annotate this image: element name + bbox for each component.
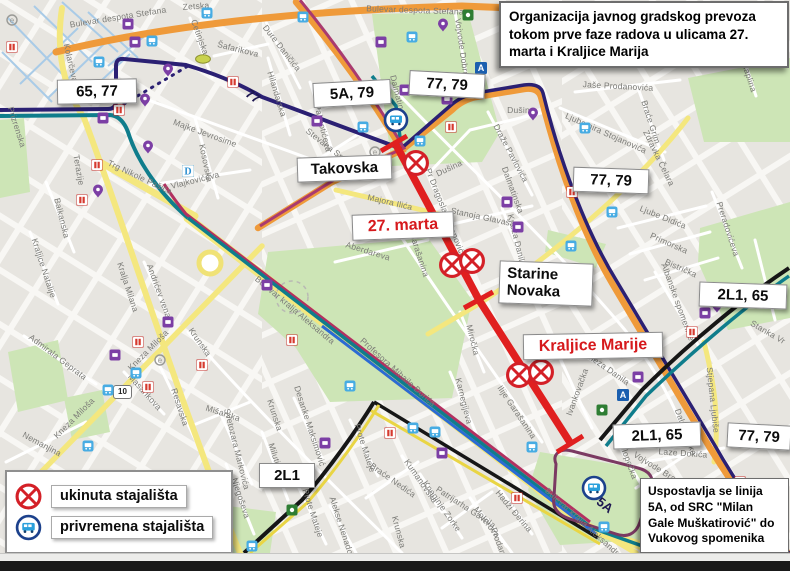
bus-stop-icon [358,122,369,133]
street-name-label: Karnegijeva [453,377,474,425]
street-name-label: Desanke Maksimović [292,385,327,468]
svg-text:A: A [478,63,485,73]
poi-hospital-icon [385,428,396,439]
street-name-label: Aberdareva [345,240,392,263]
street-name-label: Laze Dokića [658,446,708,459]
legend-row-temporary: privremena stajališta [15,514,223,541]
poi-letter-d-icon: D [182,165,194,177]
poi-hospital-icon [143,382,154,393]
svg-text:e: e [10,16,15,25]
cancelled-stop-icon [528,359,555,386]
poi-hospital-icon [512,493,523,504]
bus-stop-icon [94,57,105,68]
poi-pin-icon [163,64,173,77]
poi-green-icon [463,10,474,21]
poi-hospital-icon [114,105,125,116]
route-label-box: 5A, 79 [312,79,391,108]
bus-stop-icon [345,381,356,392]
cancelled-stop-icon [403,150,430,177]
street-name-label: Balkanska [52,197,72,239]
bus-stop-icon [131,368,142,379]
temporary-stop-icon [383,107,409,133]
bus-stop-icon [580,123,591,134]
poi-hospital-icon [687,327,698,338]
street-name-label: Bulevar despota Stefana [69,4,167,29]
poi-hospital-icon [92,160,103,171]
route-label-box: 77, 79 [726,422,790,451]
street-name-label: Hilandarska [265,70,288,118]
route-label-box: 2L1 [259,463,315,488]
street-name-label: Primorska [649,230,690,255]
poi-purple-icon [502,197,513,208]
poi-purple-icon [110,350,121,361]
bus-stop-icon [247,541,258,552]
street-name-label: Profesora Mihaila Đurića [358,336,437,409]
route-label-box: 2L1, 65 [699,281,788,309]
poi-purple-icon [98,113,109,124]
bus-stop-icon [527,442,538,453]
poi-pin-icon [528,108,538,121]
poi-purple-icon [312,116,323,127]
poi-purple-icon [262,280,273,291]
route-label-box: Takovska [297,154,393,183]
street-name-label: Preradovićeva [714,200,741,257]
street-name-label: Majora Ilića [367,192,414,212]
poi-pin-icon [143,141,153,154]
street-name-label: Terazije [71,154,86,186]
inline-route-number: 77 [243,86,264,107]
poi-hospital-icon [197,360,208,371]
bus-stop-icon [408,423,419,434]
poi-purple-icon [700,308,711,319]
legend-box: ukinuta stajališta privremena stajališta [5,470,233,554]
poi-purple-icon [123,19,134,30]
map-title: Organizacija javnog gradskog prevoza tok… [499,1,789,68]
street-name-label: Bulevar despota Stefana [366,3,464,16]
poi-purple-icon [163,317,174,328]
bus-stop-icon [202,8,213,19]
street-name-label: Krunska [187,326,214,358]
legend-row-cancelled: ukinuta stajališta [15,483,223,510]
legend-label-temporary: privremena stajališta [51,516,213,539]
bus-stop-icon [103,385,114,396]
poi-hospital-icon [7,42,18,53]
poi-purple-icon [513,222,524,233]
poi-hospital-icon [133,337,144,348]
street-name-label: Jaše Prodanovića [582,79,653,93]
note-5a-line: Uspostavlja se linija 5A, od SRC "Milan … [640,478,789,553]
bottom-bar [0,561,790,571]
poi-pin-icon [93,185,103,198]
poi-e-icon: e [6,14,18,26]
poi-purple-icon [437,448,448,459]
bottom-strip [0,553,790,561]
street-name-label: Admirala Geprata [27,332,89,382]
poi-hospital-icon [287,335,298,346]
street-name-label: Dure Daničića [261,23,303,73]
poi-pin-icon [140,94,150,107]
route-label-box: 65, 77 [57,78,137,105]
street-name-label: Krunska [390,515,408,549]
bus-stop-icon [566,241,577,252]
poi-green-icon [597,405,608,416]
bus-stop-icon [83,441,94,452]
street-name-label: Krunska [265,398,285,432]
transit-map-canvas: ZetskaBulevar despota StefanaBulevar des… [0,0,790,571]
poi-hospital-icon [228,77,239,88]
route-label-box: Starine Novaka [498,260,593,306]
bus-stop-icon [607,207,618,218]
street-name-label: Šafarikova [216,39,259,59]
route-label-box: 77, 79 [408,70,485,99]
street-name-label: Prizrenska [6,105,29,148]
pharmacy-a-icon: A [475,62,487,74]
bus-stop-icon [599,522,610,533]
temporary-stop-icon [15,514,42,541]
bus-stop-icon [298,12,309,23]
poi-purple-icon [320,438,331,449]
street-name-label: Resavska [169,387,191,427]
route-label-box: 27. marta [352,211,455,241]
poi-purple-icon [633,372,644,383]
street-name-label: Kneza Miloša [52,396,97,441]
poi-purple-icon [130,37,141,48]
svg-text:D: D [184,167,191,178]
pharmacy-a-icon: A [617,389,629,401]
street-name-label: Dušina [434,158,463,179]
route-label-box: Kraljice Marije [523,332,663,361]
svg-text:A: A [620,390,627,400]
poi-pin-icon [438,19,448,32]
street-name-label: Ljubomira Stojanovića [564,111,648,156]
temporary-stop-icon [581,475,607,501]
poi-hospital-icon [446,122,457,133]
bus-stop-icon [147,36,158,47]
street-name-label: Cetinjska [189,18,211,56]
poi-e-icon: e [154,354,166,366]
poi-green-icon [287,505,298,516]
street-name-label: Kolarčeva [62,43,81,84]
street-name-label: Trg Nikole Pašića [106,158,173,197]
street-name-label: Miročka [464,324,481,357]
street-name-label: Ljube Didića [638,203,687,231]
street-name-label: Kralja Milana [115,261,140,313]
bus-stop-icon [407,32,418,43]
bus-stop-icon [415,136,426,147]
street-name-label: Kraljice Natalije [30,237,59,299]
street-name-label: Stjepana Ljubiše [705,367,722,434]
legend-label-cancelled: ukinuta stajališta [51,485,187,508]
poi-hospital-icon [77,195,88,206]
street-name-label: Vlajkovićeva [170,169,221,191]
poi-oval-icon [195,54,211,64]
route-label-box: 77, 79 [573,167,650,195]
street-name-label: Ivankovačka [564,367,590,417]
svg-text:e: e [158,356,163,365]
bus-stop-icon [430,427,441,438]
cancelled-stop-icon [459,248,486,275]
cancelled-stop-icon [15,483,42,510]
street-name-label: Stanka Vr [749,318,788,346]
route-label-box: 2L1, 65 [613,421,702,449]
street-name-label: Andrićev venac [145,263,175,324]
road-number-badge: 10 [113,385,132,399]
street-name-label: Prote Mateje [300,487,325,538]
street-name-label: Ilije Garašanina [495,383,538,440]
poi-purple-icon [376,37,387,48]
